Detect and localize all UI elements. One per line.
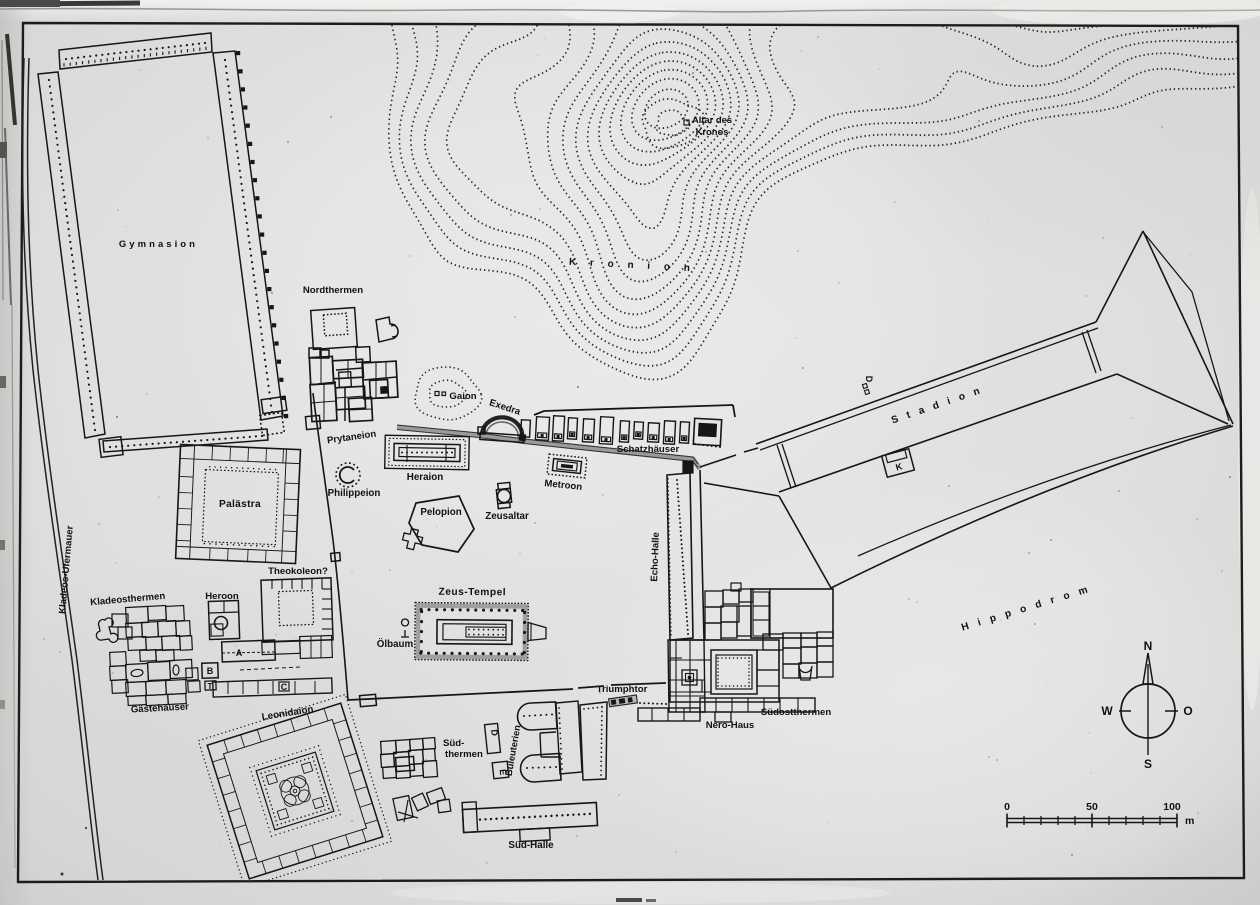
svg-text:Zeus-Tempel: Zeus-Tempel — [438, 587, 506, 599]
svg-text:C: C — [281, 682, 288, 692]
svg-text:Südostthermen: Südostthermen — [761, 707, 832, 718]
svg-text:Heroon: Heroon — [205, 591, 239, 602]
svg-text:Heraion: Heraion — [407, 472, 443, 483]
svg-text:100: 100 — [1163, 801, 1181, 813]
svg-text:Gaion: Gaion — [449, 391, 476, 402]
svg-text:0: 0 — [1004, 801, 1010, 813]
svg-text:Triumphtor: Triumphtor — [597, 684, 648, 695]
svg-text:G y m n a s i o n: G y m n a s i o n — [119, 239, 195, 250]
svg-text:T: T — [208, 682, 213, 691]
svg-text:Nero-Haus: Nero-Haus — [706, 720, 755, 731]
svg-text:Philippeion: Philippeion — [328, 488, 381, 499]
svg-text:Süd-: Süd- — [443, 738, 464, 749]
svg-text:Zeusaltar: Zeusaltar — [485, 511, 529, 522]
svg-text:50: 50 — [1086, 801, 1098, 813]
svg-text:S: S — [1144, 757, 1152, 771]
svg-text:Süd-Halle: Süd-Halle — [508, 840, 554, 851]
svg-text:N: N — [1144, 639, 1153, 653]
svg-text:Kronos: Kronos — [696, 126, 729, 137]
svg-text:Theokoleon?: Theokoleon? — [268, 566, 328, 577]
svg-text:Schatzhäuser: Schatzhäuser — [617, 444, 680, 455]
svg-text:Echo-Halle: Echo-Halle — [649, 532, 662, 582]
svg-text:D: D — [864, 376, 874, 383]
svg-text:Altar des: Altar des — [692, 114, 732, 125]
svg-text:Palästra: Palästra — [219, 499, 261, 510]
svg-text:Ölbaum: Ölbaum — [377, 639, 414, 650]
svg-text:m: m — [1185, 815, 1194, 827]
svg-text:Pelopion: Pelopion — [420, 507, 461, 518]
svg-text:O: O — [1183, 704, 1192, 718]
svg-text:B: B — [207, 666, 214, 676]
svg-text:Nordthermen: Nordthermen — [303, 285, 363, 296]
svg-text:thermen: thermen — [445, 749, 483, 760]
svg-text:W: W — [1101, 704, 1113, 718]
